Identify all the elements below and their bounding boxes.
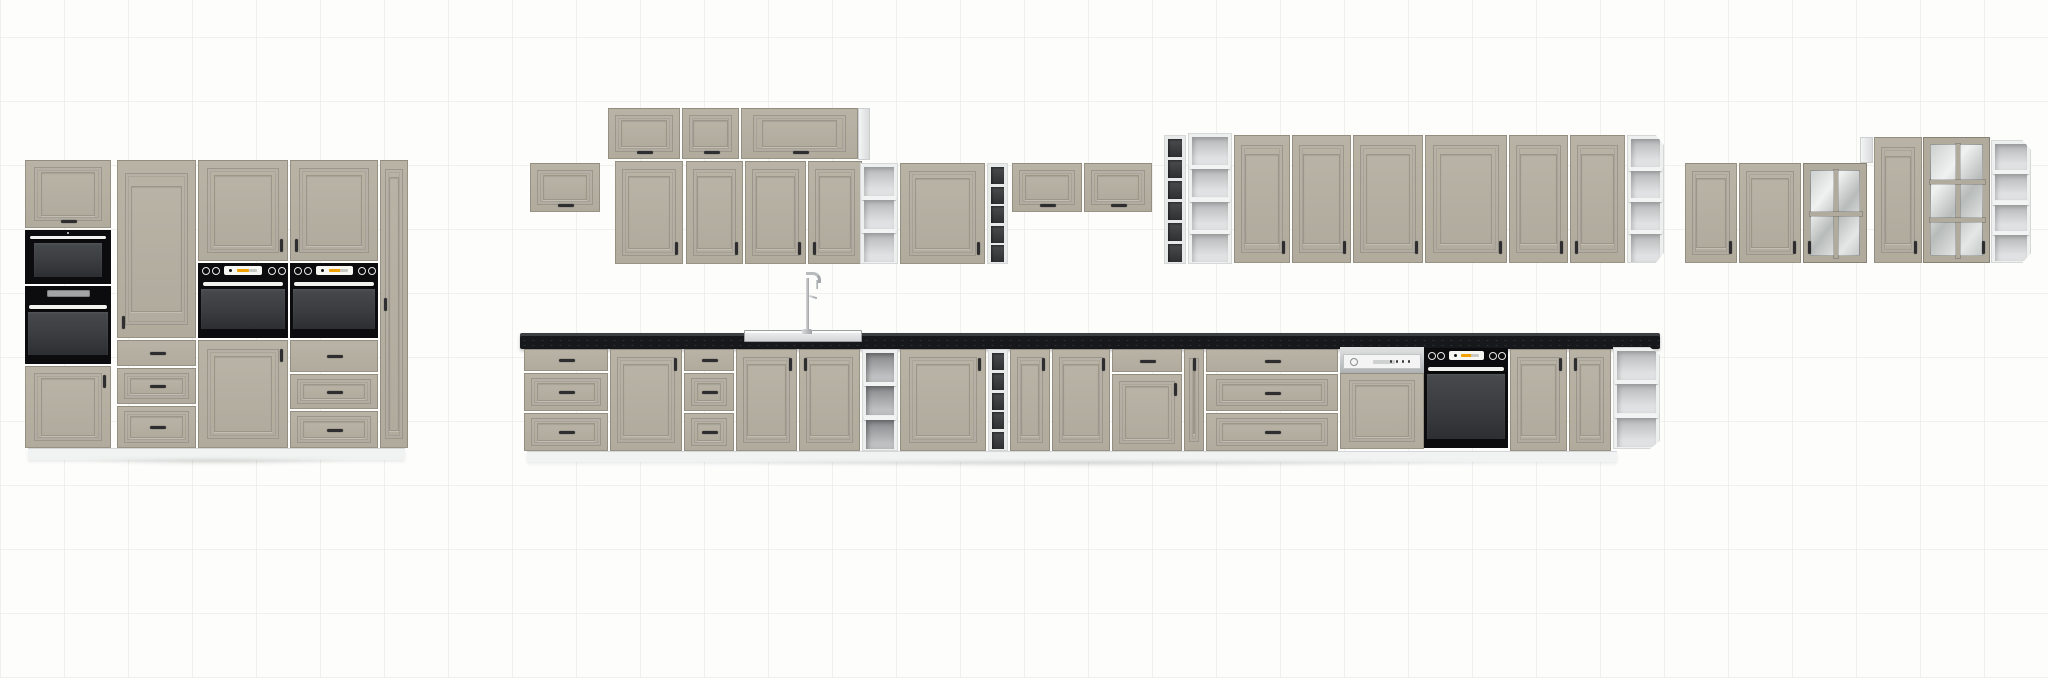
drawer-front [684,349,734,371]
door-handle [1174,383,1177,396]
shelf-compartment [1631,139,1660,167]
shelf-compartment [1617,351,1656,380]
flap-cabinet-door [530,163,600,212]
cubby-cell [991,167,1004,184]
drawer-handle [559,359,575,362]
oven-knob [368,267,376,275]
cabinet-door [1510,349,1567,451]
door-handle [1982,241,1985,254]
corner-open-shelf [1613,347,1660,449]
shelf-compartment [1192,169,1228,197]
semi-integrated-dishwasher [1340,347,1424,449]
cubby-cell [992,353,1004,370]
dishwasher-furniture-panel [1340,373,1424,449]
drawer-front [1206,349,1338,372]
shelf-compartment [864,200,894,229]
shelf-compartment [866,386,894,415]
mullion [1930,218,1985,222]
door-handle [103,375,106,388]
shelf-compartment [866,353,894,382]
drawer-handle [1265,431,1281,434]
oven-control-panel [1424,348,1508,363]
cabinet-door [380,160,408,448]
faucet [794,272,820,334]
oven-handle-bar [1428,367,1504,371]
dishwasher-button [1408,360,1411,363]
dishwasher-button [1390,360,1393,363]
cabinet-door [1570,135,1625,263]
cubby-cell [992,412,1004,429]
shelf-compartment [866,420,894,449]
door-handle [813,242,816,255]
drawer-handle [559,391,575,394]
door-handle [977,242,980,255]
open-shelf-unit [1188,133,1232,264]
cabinet-door [745,161,806,264]
door-handle [295,239,298,252]
dishwasher-control-strip [1340,347,1424,373]
door-handle [122,316,125,329]
door-handle [789,358,792,371]
door-handle [280,349,283,362]
shelf-compartment [1192,202,1228,230]
floor-shadow [516,461,1664,470]
cabinet-door [1685,163,1737,263]
shelf-compartment [1995,235,2027,261]
open-shelf-unit [862,349,898,451]
drawer-front [684,373,734,411]
oven-door-glass [293,289,375,329]
floor-shadow [18,459,415,468]
cubby-cell [992,373,1004,390]
mullion [1956,144,1960,258]
shelf-compartment [864,233,894,262]
door-handle [704,151,720,154]
door-handle [1499,241,1502,254]
cabinet-side-panel [858,108,870,160]
door-handle [1343,241,1346,254]
cabinet-door [1112,374,1182,451]
shelf-compartment [1995,205,2027,231]
shelf-compartment [1995,144,2027,170]
door-handle [1193,358,1196,371]
door-handle [735,242,738,255]
oven-knob [1437,352,1445,360]
display-dot [1454,354,1457,357]
drawer-handle [327,355,343,358]
oven-door-glass [1427,374,1505,439]
oven-handle-bar [203,282,283,286]
microwave-window [34,243,102,277]
door-handle [61,220,77,223]
microwave-led [67,232,69,234]
cabinet-door [1874,137,1922,263]
display-dash [249,269,257,272]
dishwasher-button [1402,360,1405,363]
oven-knob [358,267,366,275]
shelf-compartment [1617,418,1656,447]
dishwasher-button [1396,360,1399,363]
cubby-cell [1168,160,1182,178]
cubby-cell [991,245,1004,262]
cubby-cell [991,187,1004,204]
shelf-compartment [1617,384,1656,413]
oven-control-panel [198,263,288,278]
drawer-front [1206,374,1338,411]
cabinet-door [1425,135,1507,263]
oven-knob [294,267,302,275]
drawer-front [290,340,378,372]
cubby-cell [992,393,1004,410]
display-dash [1471,354,1479,357]
microwave-handle-bar [30,236,106,239]
cubby-cell [1168,223,1182,241]
oven-door-glass [28,312,108,355]
cabinet-door [900,163,985,264]
corner-open-shelf [1627,135,1664,263]
cabinet-door [1292,135,1351,263]
drawer-handle [1265,360,1281,363]
drawer-handle [702,391,718,394]
open-shelf-unit [860,163,898,264]
oven-knob [278,267,286,275]
oven-knob [212,267,220,275]
flap-cabinet-door [608,108,680,159]
door-handle [637,151,653,154]
door-handle [1102,358,1105,371]
drawer-front [117,340,196,366]
drawer-stack [684,349,734,451]
door-handle [804,358,807,371]
mullion [1930,180,1985,184]
door-handle [1111,204,1127,207]
drawer-stack [290,340,378,448]
cabinet-door [686,161,743,264]
drawer-handle [702,431,718,434]
kitchen-elevation-render [0,0,2048,678]
shelf-compartment [1631,234,1660,262]
cabinet-door [1569,349,1611,451]
shelf-compartment [864,167,894,196]
drawer-front [1206,413,1338,451]
cabinet-door [610,349,682,451]
drawer-handle [559,431,575,434]
glass-door-cabinet [1803,163,1867,263]
cabinet-door [117,160,196,338]
oven-knob [202,267,210,275]
door-handle [1914,241,1917,254]
countertop [520,333,1660,349]
built-in-oven [198,263,288,338]
door-handle [1560,241,1563,254]
door-handle [1042,358,1045,371]
open-cubby-column [988,349,1008,451]
door-handle [1282,241,1285,254]
cubby-cell [1168,202,1182,220]
door-handle [1040,204,1056,207]
door-handle [674,358,677,371]
shelf-compartment [1192,137,1228,165]
oven-knob [268,267,276,275]
cabinet-side-panel [1860,137,1873,163]
oven-control-panel [25,286,111,301]
door-handle [1559,358,1562,371]
shelf-compartment [1192,234,1228,262]
door-handle [1415,241,1418,254]
oven-knob [1498,352,1506,360]
corner-open-shelf [1991,140,2031,263]
drawer-handle [327,391,343,394]
display-dash [340,269,348,272]
drawer-front [290,411,378,448]
door-handle [978,358,981,371]
cabinet-door [1509,135,1568,263]
drawer-stack [117,340,196,448]
mullion [1810,212,1862,216]
cabinet-door [290,160,378,261]
flap-cabinet-door [741,108,858,159]
cabinet-door [615,161,683,264]
drawer-front [524,373,608,411]
flap-cabinet-door [1084,163,1152,212]
drawer-handle [702,359,718,362]
display-dot [229,269,232,272]
shelf-compartment [1995,174,2027,200]
shelf-compartment [1631,171,1660,199]
cabinet-door [1052,349,1110,451]
faucet-arc [806,272,821,283]
drawer-front [290,374,378,409]
drawer-front [117,368,196,404]
cubby-cell [1168,244,1182,262]
cabinet-door [25,366,111,448]
faucet-spout [816,280,818,289]
oven-display [47,290,90,297]
cubby-cell [991,206,1004,223]
cabinet-door [198,340,288,448]
open-cubby-column [1164,135,1186,264]
door-handle [1808,241,1811,254]
drawer-handle [1265,392,1281,395]
cubby-cell [1168,139,1182,157]
built-in-oven [25,286,111,364]
cabinet-door [198,160,288,261]
glass-door-cabinet [1923,137,1990,263]
door-handle [675,242,678,255]
display-dot [321,269,324,272]
door-handle [1575,241,1578,254]
cabinet-door [799,349,860,451]
display-orange-bar [237,269,249,272]
drawer-front [684,413,734,451]
faucet-column [806,278,809,330]
cabinet-door [900,349,986,451]
drawer-front [524,413,608,451]
dishwasher-control-band [1343,354,1421,369]
cabinet-door [1010,349,1050,451]
cubby-cell [992,432,1004,449]
oven-door-glass [201,289,285,329]
drawer-handle [327,429,343,432]
oven-knob [1489,352,1497,360]
flap-cabinet-door [682,108,739,159]
door-handle [280,239,283,252]
drawer-front [524,349,608,371]
drawer-handle [1140,360,1156,363]
cabinet-door [1184,349,1204,451]
oven-display [224,266,262,275]
flap-cabinet-door [1012,163,1082,212]
shelf-compartment [1631,202,1660,230]
cubby-cell [1168,181,1182,199]
drawer-front [117,406,196,448]
built-in-microwave [25,230,111,284]
dishwasher-dial [1350,358,1358,366]
drawer-handle [150,352,166,355]
faucet-lever [809,295,817,299]
oven-handle-bar [29,305,107,309]
cabinet-door [808,161,862,264]
drawer-handle [150,385,166,388]
cabinet-door [736,349,797,451]
oven-handle-bar [294,282,374,286]
door-handle [558,204,574,207]
oven-knob [304,267,312,275]
cabinet-door [1353,135,1423,263]
door-handle [1729,241,1732,254]
door-handle [1793,241,1796,254]
drawer-stack [1206,349,1338,451]
door-handle [798,242,801,255]
door-handle [384,298,387,311]
built-in-oven [290,263,378,338]
oven-knob [1428,352,1436,360]
cubby-cell [991,226,1004,243]
oven-control-panel [290,263,378,278]
drawer-front [1112,349,1182,372]
oven-display [316,266,353,275]
drawer-handle [150,426,166,429]
oven-display [1449,351,1484,360]
door-handle [1574,358,1577,371]
drawer-over-door-cabinet [1112,349,1182,451]
cabinet-door [1739,163,1801,263]
drawer-stack [524,349,608,451]
flap-cabinet-door [25,160,111,228]
cabinet-door [1234,135,1290,263]
built-in-oven [1424,348,1508,448]
open-cubby-column [987,163,1008,264]
door-handle [793,151,809,154]
